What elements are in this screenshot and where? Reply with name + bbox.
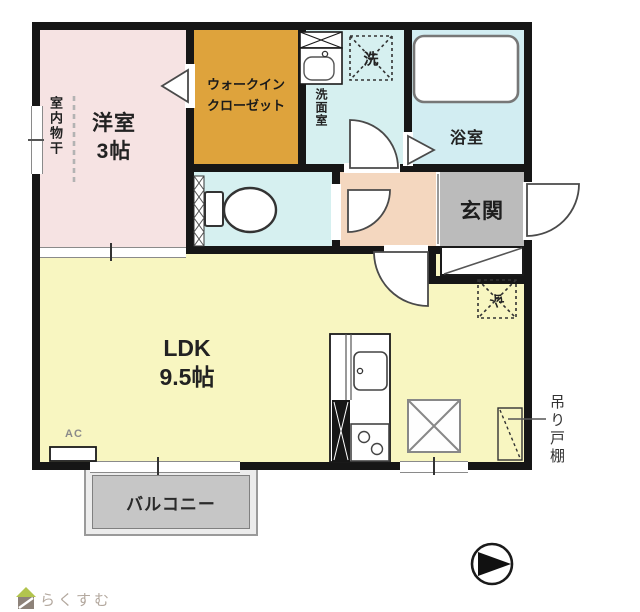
- shoe-cabinet-diagonal: [444, 248, 522, 274]
- bathtub-icon: [414, 36, 518, 102]
- entry-door-arc: [527, 184, 579, 236]
- room-size: 9.5帖: [130, 363, 244, 392]
- indoor-drying-label: 室内物干: [46, 96, 65, 156]
- closet-door-icon: [162, 70, 188, 102]
- ac-unit-icon: [50, 447, 96, 461]
- toilet-icon: [205, 188, 276, 232]
- ldk-door-arc: [374, 252, 428, 306]
- western-room-label: 洋室 3帖: [76, 110, 152, 165]
- washroom-door-arc: [350, 120, 398, 168]
- room-name: 洋室: [76, 110, 152, 138]
- closet-label-line1: ウォークイン: [194, 74, 298, 95]
- accordion-door: [194, 176, 204, 246]
- site-logo: らくすむ: [40, 590, 112, 608]
- washroom-label: 洗面室: [313, 88, 330, 127]
- hanging-cupboard-icon: [498, 408, 546, 460]
- floor-plan: バルコニー: [0, 0, 640, 612]
- appliance-space-icon: [408, 400, 460, 452]
- room-name: LDK: [130, 334, 244, 363]
- compass-icon: [472, 544, 512, 584]
- logo-text: らくすむ: [40, 589, 112, 610]
- bath-door-icon: [408, 136, 434, 164]
- home-icon: [16, 587, 36, 609]
- kitchen-sink-icon: [354, 352, 387, 390]
- hanging-cupboard-label: 吊り戸棚: [546, 394, 567, 466]
- washer-label: 洗: [350, 36, 392, 80]
- ldk-label: LDK 9.5帖: [130, 334, 244, 393]
- cabinet-icon: [300, 32, 342, 48]
- bathroom-label: 浴室: [435, 124, 499, 148]
- washbasin-icon: [300, 48, 342, 84]
- entrance-label: 玄関: [444, 195, 520, 225]
- toilet-door-arc: [348, 190, 390, 232]
- ac-label: AC: [58, 428, 90, 440]
- walk-in-closet-label: ウォークイン クローゼット: [194, 74, 298, 117]
- stove-icon: [351, 424, 389, 461]
- kitchen-counter: [330, 334, 390, 462]
- room-size: 3帖: [76, 138, 152, 166]
- closet-label-line2: クローゼット: [194, 95, 298, 116]
